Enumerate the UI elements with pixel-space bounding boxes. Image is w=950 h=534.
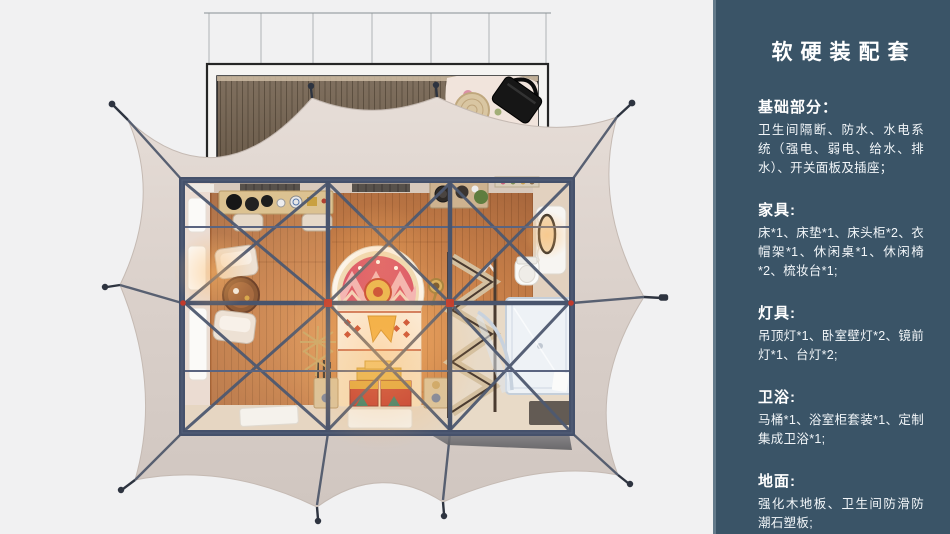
panel-title: 软硬装配套 — [758, 36, 924, 66]
section-flooring: 地面: 强化木地板、卫生间防滑防潮石塑板; — [758, 470, 924, 533]
section-heading: 地面: — [758, 470, 924, 491]
section-heading: 卫浴: — [758, 386, 924, 407]
section-bathroom: 卫浴: 马桶*1、浴室柜套装*1、定制集成卫浴*1; — [758, 386, 924, 449]
section-furniture: 家具: 床*1、床垫*1、床头柜*2、衣帽架*1、休闲桌*1、休闲椅*2、梳妆台… — [758, 199, 924, 281]
section-body: 吊顶灯*1、卧室壁灯*2、镜前灯*1、台灯*2; — [758, 327, 924, 365]
hat — [261, 195, 273, 207]
slide: 软硬装配套 基础部分： 卫生间隔断、防水、水电系统（强电、弱电、给水、排水）、开… — [0, 0, 950, 534]
section-body: 强化木地板、卫生间防滑防潮石塑板; — [758, 495, 924, 533]
section-basics: 基础部分： 卫生间隔断、防水、水电系统（强电、弱电、给水、排水）、开关面板及插座… — [758, 96, 924, 178]
section-heading: 基础部分： — [758, 96, 924, 117]
section-heading: 家具: — [758, 199, 924, 220]
plant — [474, 190, 488, 204]
bath-mat — [529, 401, 571, 425]
section-lighting: 灯具: 吊顶灯*1、卧室壁灯*2、镜前灯*1、台灯*2; — [758, 302, 924, 365]
info-panel: 软硬装配套 基础部分： 卫生间隔断、防水、水电系统（强电、弱电、给水、排水）、开… — [713, 0, 950, 534]
armchair-2 — [212, 310, 256, 345]
section-body: 床*1、床垫*1、床头柜*2、衣帽架*1、休闲桌*1、休闲椅*2、梳妆台*1; — [758, 224, 924, 281]
room-interior — [174, 177, 574, 450]
section-heading: 灯具: — [758, 302, 924, 323]
towel — [552, 371, 569, 392]
section-body: 马桶*1、浴室柜套装*1、定制集成卫浴*1; — [758, 411, 924, 449]
hat — [226, 194, 242, 210]
section-body: 卫生间隔断、防水、水电系统（强电、弱电、给水、排水）、开关面板及插座； — [758, 121, 924, 178]
floorplan-scene — [0, 0, 713, 534]
hat — [245, 197, 259, 211]
